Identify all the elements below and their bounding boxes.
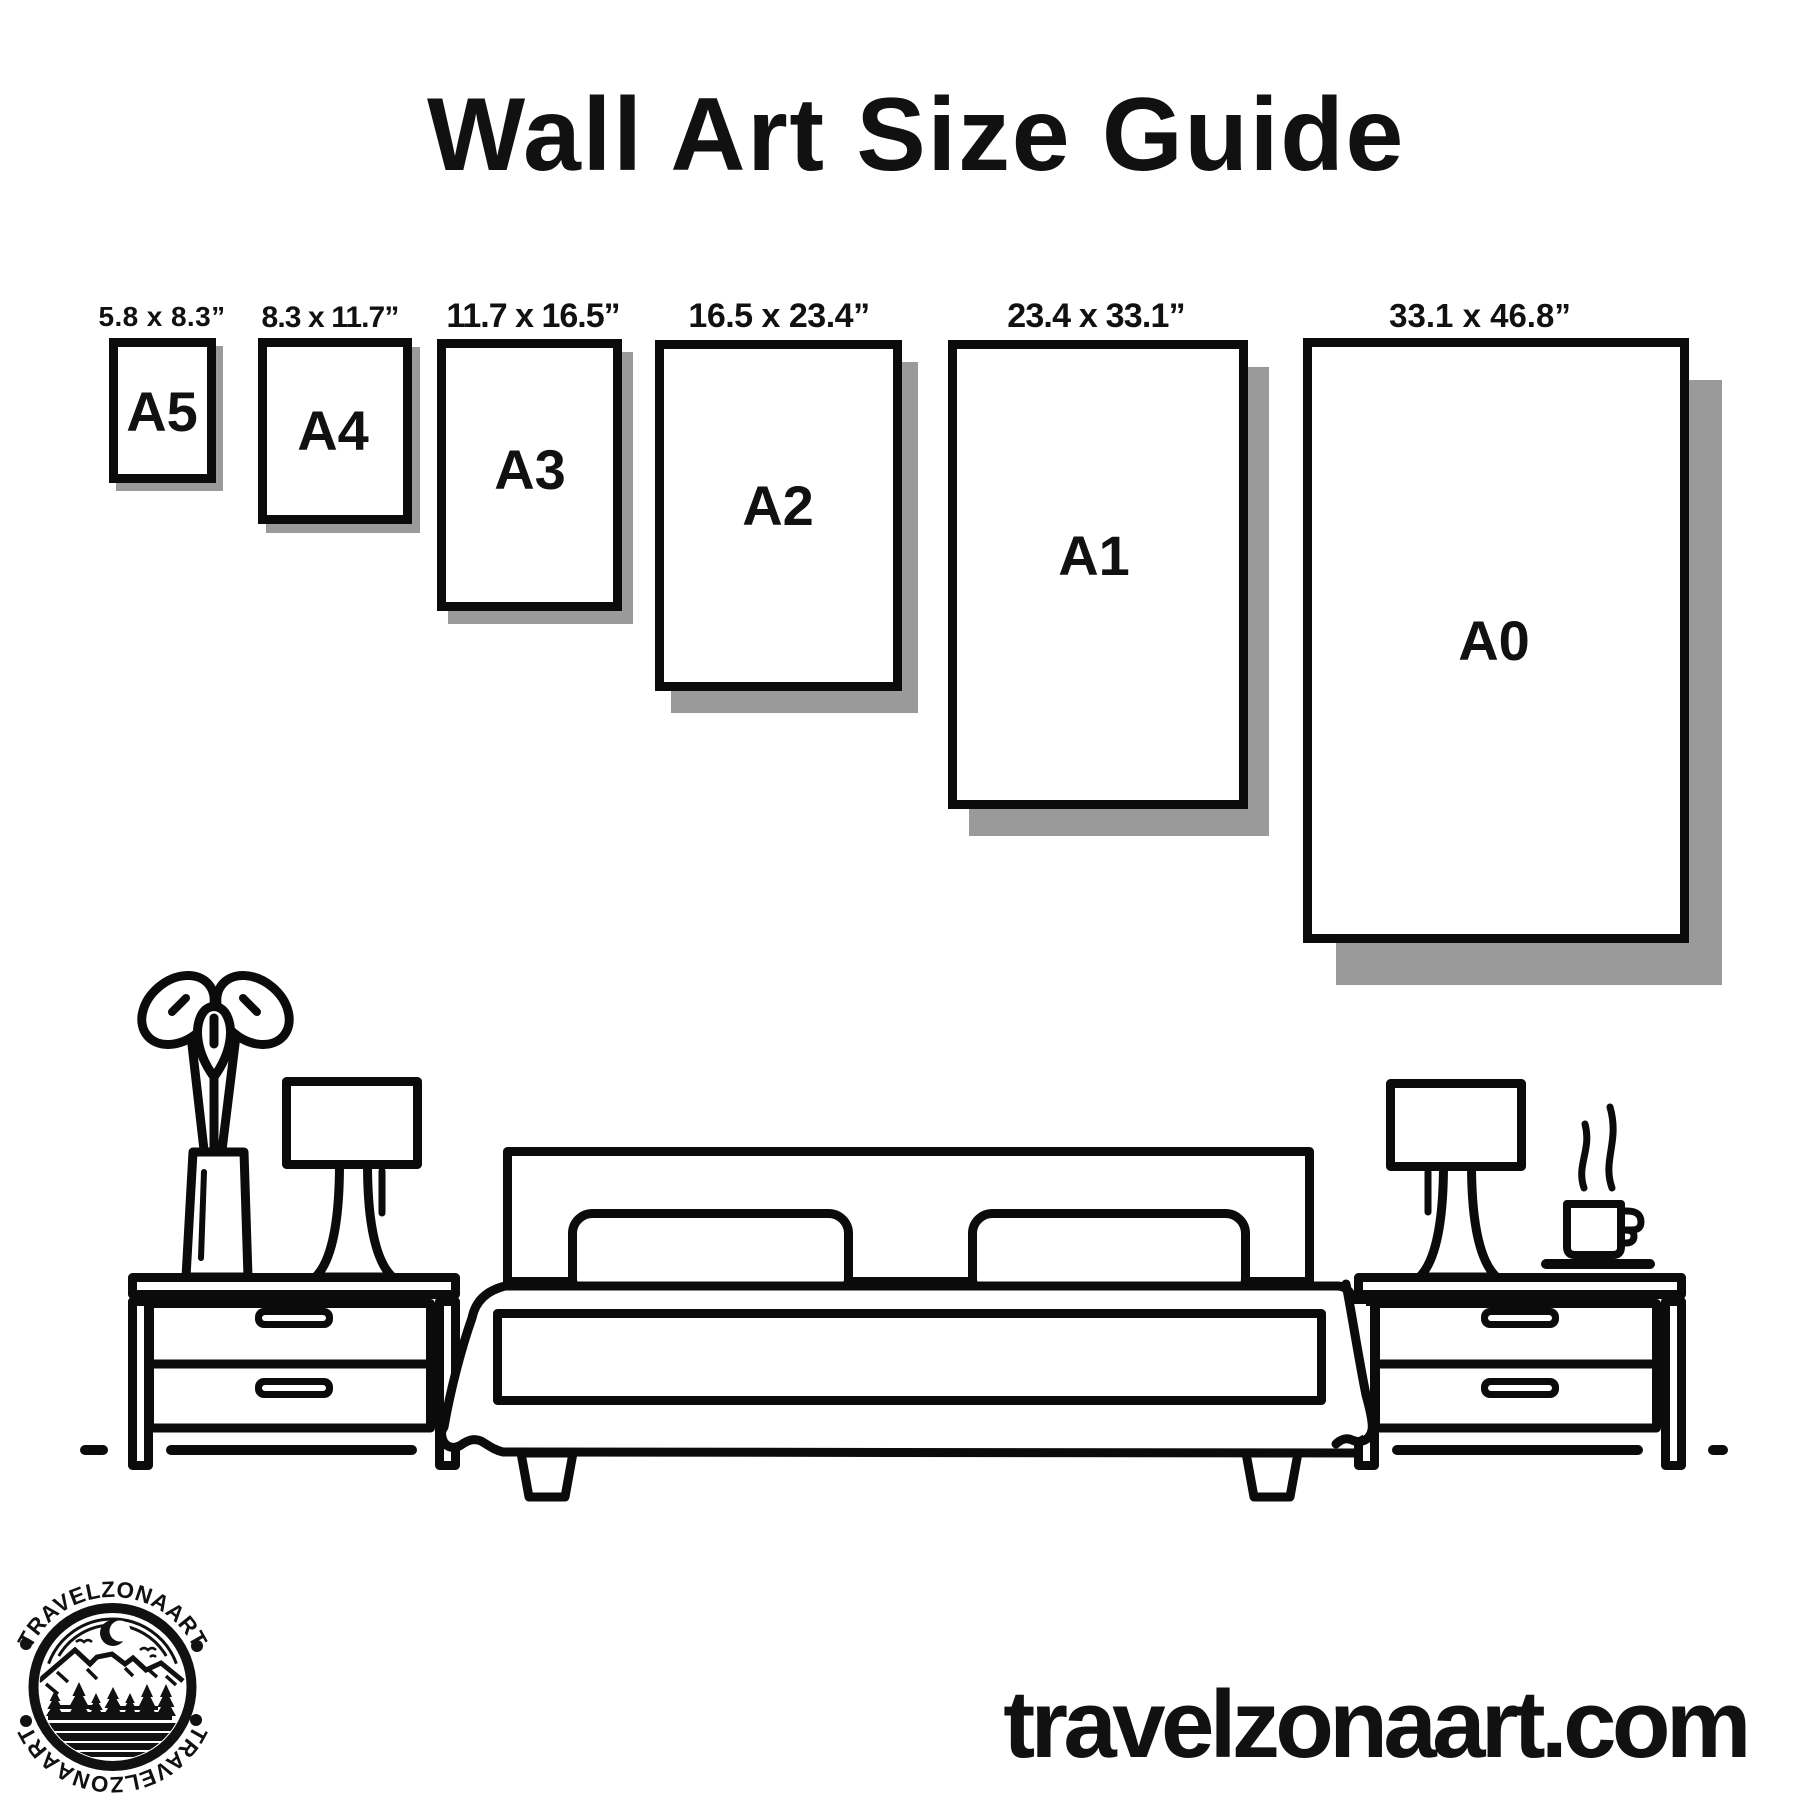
svg-text:8.3 x 11.7”: 8.3 x 11.7” [262, 301, 399, 334]
svg-text:A5: A5 [126, 380, 198, 443]
svg-text:A1: A1 [1058, 524, 1130, 587]
svg-text:16.5 x 23.4”: 16.5 x 23.4” [688, 297, 869, 335]
svg-text:A4: A4 [297, 399, 369, 462]
svg-text:11.7 x 16.5”: 11.7 x 16.5” [446, 297, 619, 335]
svg-text:Wall Art Size Guide: Wall Art Size Guide [427, 77, 1405, 193]
svg-text:A0: A0 [1458, 609, 1530, 672]
svg-text:travelzonaart.com: travelzonaart.com [1003, 1671, 1746, 1778]
svg-text:5.8 x 8.3”: 5.8 x 8.3” [99, 301, 226, 332]
svg-text:A3: A3 [494, 438, 566, 501]
svg-text:33.1 x 46.8”: 33.1 x 46.8” [1389, 297, 1571, 334]
svg-text:A2: A2 [742, 474, 814, 537]
svg-text:23.4 x 33.1”: 23.4 x 33.1” [1007, 297, 1185, 335]
